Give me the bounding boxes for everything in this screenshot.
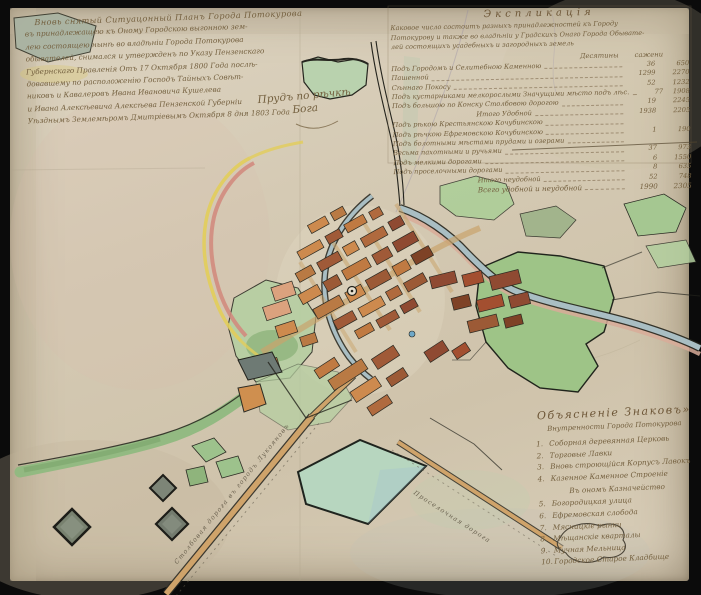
pond-label-flourish: [296, 121, 338, 128]
explication-panel: Экспликацiя Каковое число состоитъ разны…: [390, 5, 692, 197]
cathedral-marker: [348, 287, 357, 296]
col-header-sazheni: сажени: [635, 50, 664, 59]
photographed-map: Вновь снятый Ситуацонный Планъ Города По…: [0, 0, 701, 595]
legend-panel: Объясненiе Знаковъ» Внутренности Города …: [535, 403, 700, 569]
title-cartouche: Вновь снятый Ситуацонный Планъ Города По…: [24, 8, 286, 129]
col-header-desyatiny: Десятины: [580, 51, 619, 60]
small-pond-marker: [409, 331, 415, 337]
